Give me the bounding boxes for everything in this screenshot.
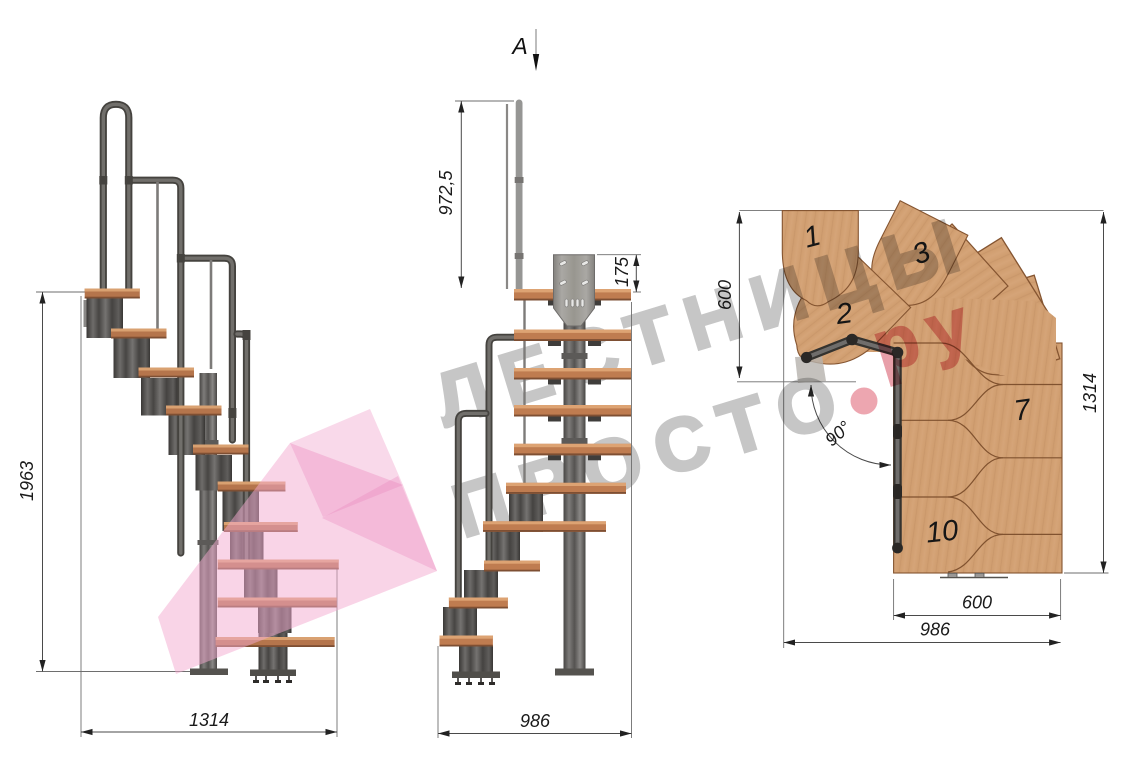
svg-text:600: 600 bbox=[962, 593, 992, 613]
svg-text:986: 986 bbox=[520, 711, 551, 731]
svg-text:175: 175 bbox=[612, 256, 632, 287]
svg-text:10: 10 bbox=[924, 514, 959, 549]
svg-text:972,5: 972,5 bbox=[436, 169, 456, 215]
svg-text:A: A bbox=[510, 33, 527, 59]
svg-text:1314: 1314 bbox=[1080, 373, 1100, 413]
svg-text:986: 986 bbox=[920, 620, 951, 640]
svg-text:1963: 1963 bbox=[17, 461, 37, 501]
svg-text:1314: 1314 bbox=[189, 710, 229, 730]
